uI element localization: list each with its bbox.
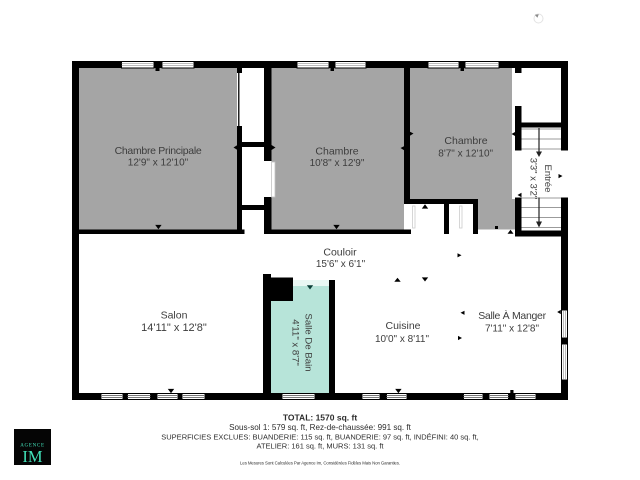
svg-text:Chambre: Chambre [315,145,358,157]
svg-text:Chambre: Chambre [444,135,487,147]
svg-text:Les Mesures Sont Calculées Par: Les Mesures Sont Calculées Par Agence Im… [240,460,400,465]
svg-text:15'6" x 6'1": 15'6" x 6'1" [316,259,366,270]
svg-text:10'0" x 8'11": 10'0" x 8'11" [375,334,430,345]
svg-text:14'11" x 12'8": 14'11" x 12'8" [141,322,207,334]
svg-text:Salle De Bain: Salle De Bain [303,313,314,371]
svg-text:TOTAL: 1570 sq. ft: TOTAL: 1570 sq. ft [283,413,357,423]
svg-text:3'3" x 3'2": 3'3" x 3'2" [528,158,539,200]
svg-text:Sous-sol 1: 579 sq. ft, Rez-de: Sous-sol 1: 579 sq. ft, Rez-de-chaussée:… [229,423,412,432]
svg-text:SUPERFICIES EXCLUES: BUANDERIE: SUPERFICIES EXCLUES: BUANDERIE: 115 sq. … [161,433,478,442]
svg-text:Couloir: Couloir [323,247,357,259]
svg-text:7'11" x 12'8": 7'11" x 12'8" [485,324,540,335]
svg-text:Salle À Manger: Salle À Manger [478,309,546,322]
svg-text:Cuisine: Cuisine [385,320,420,332]
svg-text:Chambre Principale: Chambre Principale [115,145,202,157]
svg-text:12'9" x 12'10": 12'9" x 12'10" [128,158,189,169]
svg-text:Entrée: Entrée [542,165,553,193]
svg-text:4'11" x 8'7": 4'11" x 8'7" [290,319,301,366]
svg-text:ATELIER: 161 sq. ft, MURS: 131: ATELIER: 161 sq. ft, MURS: 131 sq. ft [257,441,385,450]
svg-text:10'8" x 12'9": 10'8" x 12'9" [310,158,365,169]
svg-text:IM: IM [22,447,42,466]
svg-text:Salon: Salon [161,310,188,322]
svg-text:8'7" x 12'10": 8'7" x 12'10" [438,148,493,159]
